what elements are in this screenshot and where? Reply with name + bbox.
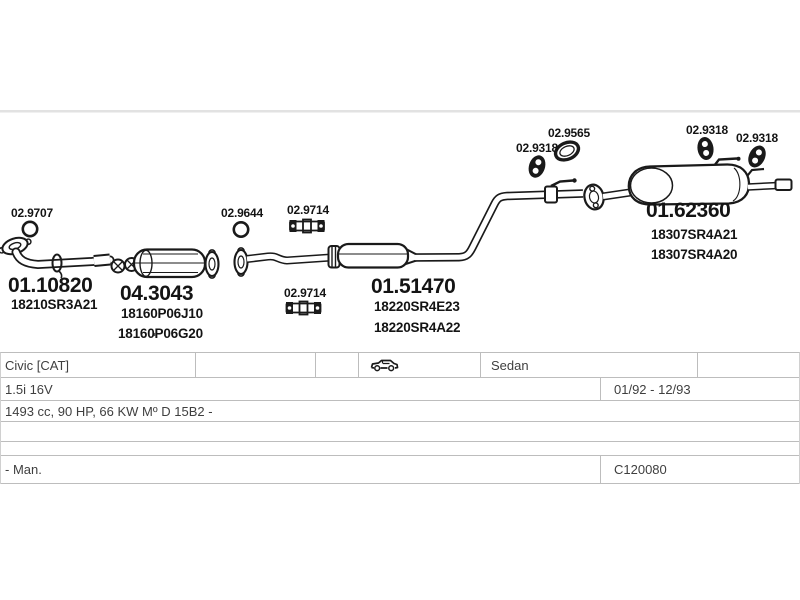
rubber-mount-icon xyxy=(696,136,715,161)
part-ref-rear-muffler: 01.62360 xyxy=(646,200,730,221)
exhaust-catalog-page: 02.9707 02.9644 02.9714 02.9714 02.9318 … xyxy=(0,0,800,600)
cat-outlet-flange-drawing xyxy=(206,250,219,278)
part-ref-strap-bottom: 02.9714 xyxy=(284,287,326,299)
part-ref-oval-gasket: 02.9565 xyxy=(548,127,590,139)
empty-cell xyxy=(196,353,316,377)
table-row-model: Civic [CAT] Sedan xyxy=(1,353,799,378)
table-row-empty-2 xyxy=(1,442,799,456)
part-ref-strap-top: 02.9714 xyxy=(287,204,329,216)
build-period-cell: 01/92 - 12/93 xyxy=(601,378,799,400)
rubber-mount-icon xyxy=(745,143,769,171)
table-row-empty-1 xyxy=(1,422,799,442)
car-icon-cell xyxy=(359,353,481,377)
empty-cell xyxy=(1,422,799,441)
part-number-catalyst-2: 18160P06G20 xyxy=(118,327,203,341)
empty-cell xyxy=(698,353,799,377)
part-ref-front-pipe: 01.10820 xyxy=(8,275,92,296)
part-number-front-pipe: 18210SR3A21 xyxy=(11,298,97,312)
part-ref-mount-left: 02.9318 xyxy=(516,142,558,154)
empty-cell xyxy=(316,353,359,377)
catalytic-converter-drawing xyxy=(134,250,205,278)
engine-spec-cell: 1493 cc, 90 HP, 66 KW Mº D 15B2 - xyxy=(1,401,799,421)
midpipe-inlet-flange-drawing xyxy=(235,248,248,276)
part-number-catalyst-1: 18160P06J10 xyxy=(121,307,203,321)
strap-bracket-icon xyxy=(286,302,321,315)
exhaust-system-diagram: 02.9707 02.9644 02.9714 02.9714 02.9318 … xyxy=(0,0,800,352)
part-ref-gasket-mid: 02.9644 xyxy=(221,207,263,219)
part-number-rear-muffler-2: 18307SR4A20 xyxy=(651,248,737,262)
mid-pipe-drawing xyxy=(247,256,331,260)
tail-pipe-drawing xyxy=(748,180,792,191)
part-ref-mid-muffler: 01.51470 xyxy=(371,276,455,297)
part-number-mid-muffler-2: 18220SR4A22 xyxy=(374,321,460,335)
o-ring-gasket-icon xyxy=(234,222,248,236)
part-ref-mount-mid: 02.9318 xyxy=(686,124,728,136)
table-row-transmission: - Man. C120080 xyxy=(1,456,799,484)
mid-muffler-drawing xyxy=(329,244,417,268)
engine-cell: 1.5i 16V xyxy=(1,378,601,400)
rear-muffler-drawing xyxy=(603,157,764,205)
part-ref-gasket-front: 02.9707 xyxy=(11,207,53,219)
table-row-engine: 1.5i 16V 01/92 - 12/93 xyxy=(1,378,799,401)
rubber-mount-icon xyxy=(526,153,548,180)
sedan-car-icon xyxy=(369,358,399,372)
part-number-rear-muffler-1: 18307SR4A21 xyxy=(651,228,737,242)
part-ref-mount-right: 02.9318 xyxy=(736,132,778,144)
transmission-cell: - Man. xyxy=(1,456,601,483)
strap-bracket-icon xyxy=(290,220,325,233)
empty-cell xyxy=(1,442,799,455)
part-ref-catalyst: 04.3043 xyxy=(120,283,193,304)
model-cell: Civic [CAT] xyxy=(1,353,196,377)
rear-flange-drawing xyxy=(582,183,606,211)
vehicle-application-table: Civic [CAT] Sedan 1.5i 16V 01/92 - 12/93… xyxy=(0,352,800,484)
o-ring-gasket-icon xyxy=(23,222,37,236)
print-speck xyxy=(154,333,156,336)
catalog-code-cell: C120080 xyxy=(601,456,799,483)
tail-connecting-pipe-drawing xyxy=(415,194,583,258)
table-row-engine-spec: 1493 cc, 90 HP, 66 KW Mº D 15B2 - xyxy=(1,401,799,422)
part-number-mid-muffler-1: 18220SR4E23 xyxy=(374,300,460,314)
body-type-cell: Sedan xyxy=(481,353,698,377)
